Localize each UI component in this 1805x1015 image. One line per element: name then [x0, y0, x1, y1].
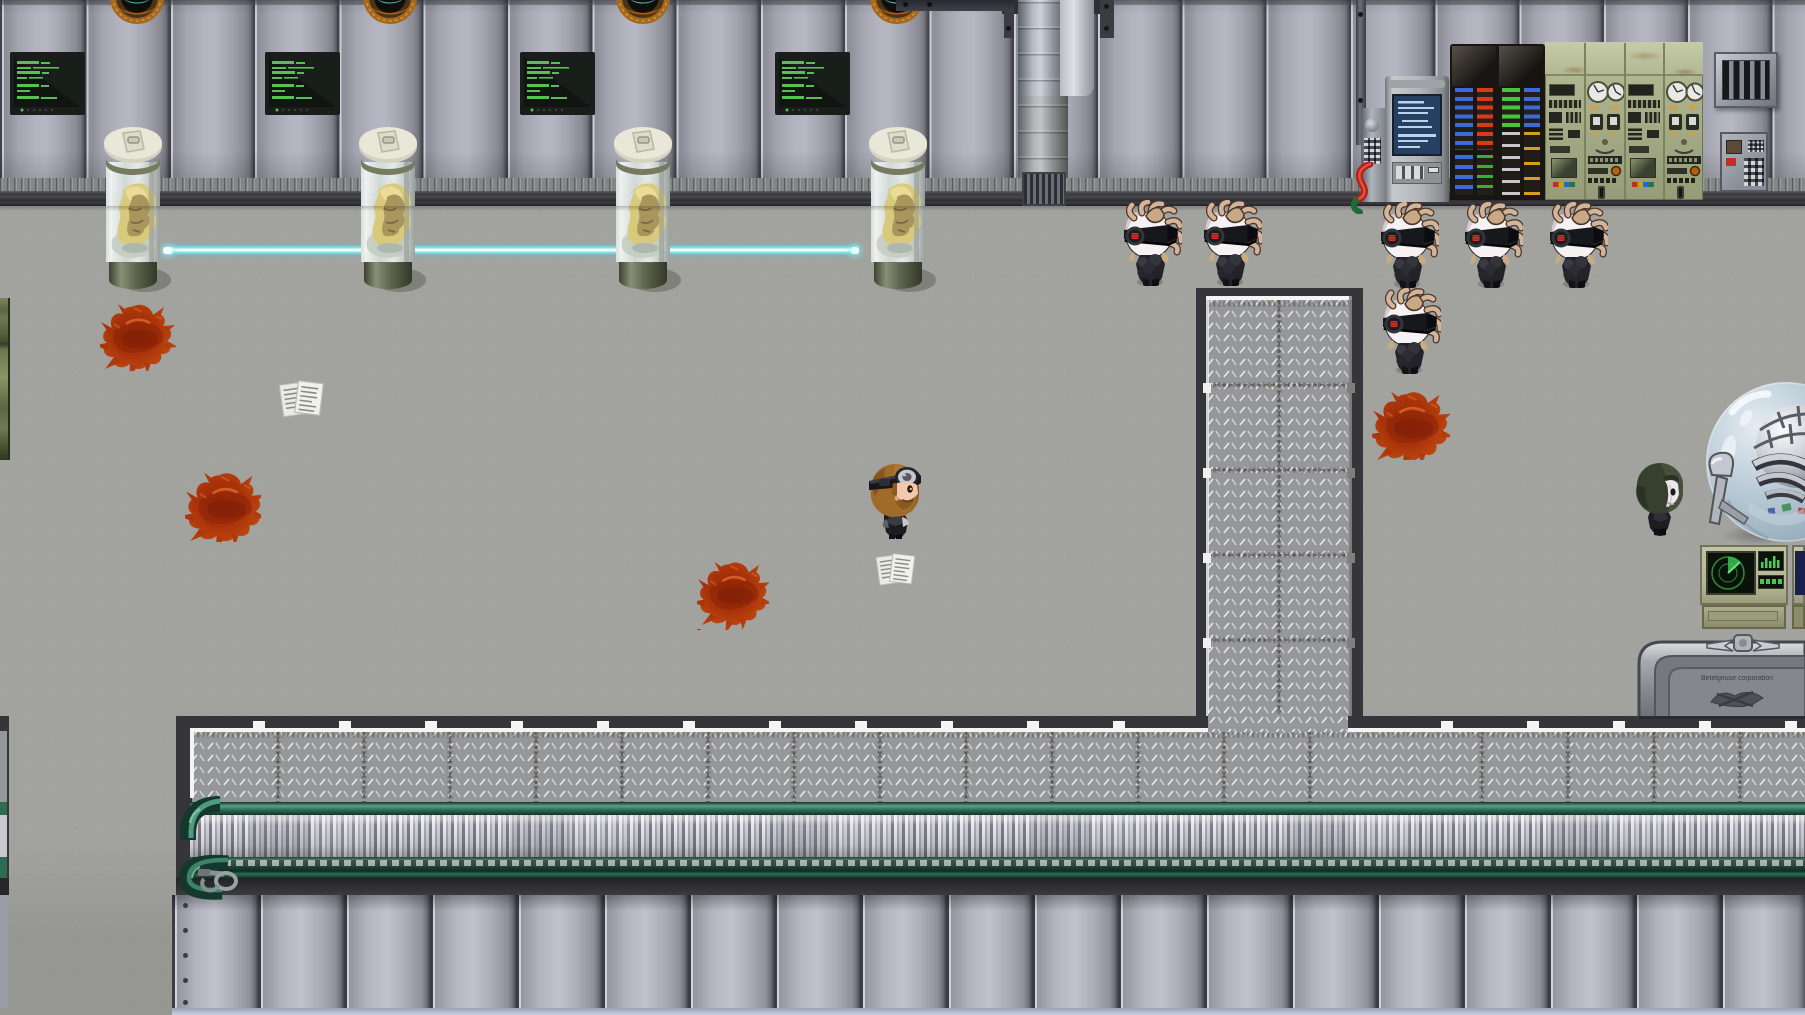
svg-text:Betelgeuse corporation: Betelgeuse corporation [1701, 675, 1773, 682]
